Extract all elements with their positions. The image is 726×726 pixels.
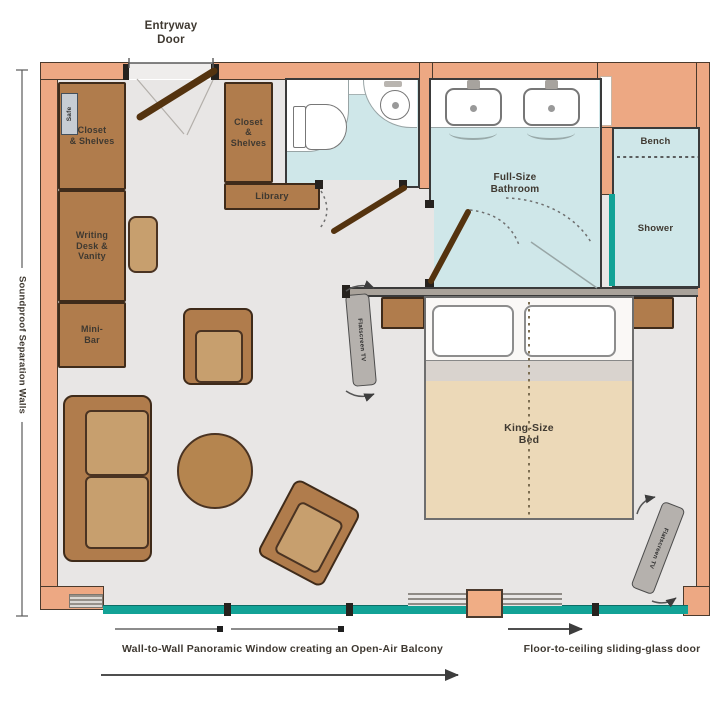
soundproof-walls-label: Soundproof Separation Walls (16, 268, 27, 422)
mini-bar: Mini- Bar (58, 302, 126, 368)
writing-desk-label: Writing Desk & Vanity (76, 230, 108, 262)
faucet-icon (467, 80, 480, 89)
window-mullion-post (466, 589, 503, 618)
bench-label: Bench (614, 136, 697, 147)
entryway-door-label: Entryway Door (121, 20, 221, 47)
sofa-cushion (85, 410, 149, 476)
sofa-cushion (85, 476, 149, 549)
panoramic-window-caption: Wall-to-Wall Panoramic Window creating a… (90, 643, 475, 655)
doorpost (425, 200, 434, 208)
round-sink-drain (392, 102, 399, 109)
accent-chair-cushion (273, 500, 344, 575)
wall-block-top-right (597, 62, 710, 129)
shower-glass-wall (609, 194, 615, 286)
faucet-icon (384, 81, 402, 87)
window-divider (346, 603, 353, 616)
flatscreen-tv-bed-label: Flatscreen TV (356, 318, 366, 362)
nightstand-right (632, 297, 674, 329)
toilet-room (285, 78, 420, 188)
floor-plan: Full-Size Bathroom Bench Shower King-Siz… (0, 0, 726, 726)
pillow (432, 305, 514, 357)
closet-mid-label: Closet & Shelves (231, 117, 266, 149)
sliding-door-track (502, 593, 562, 606)
toilet-room-door-opening (323, 180, 401, 190)
dimension-dot (338, 626, 344, 632)
full-bathroom-label: Full-Size Bathroom (431, 172, 599, 196)
doorpost (211, 64, 219, 80)
towel-arc (449, 126, 497, 140)
wall-top-left-segment (40, 62, 129, 80)
doorpost (315, 180, 323, 189)
sink-left-drain (470, 105, 477, 112)
shower-room: Bench Shower (612, 127, 700, 288)
bed-sheet-band (426, 360, 632, 382)
library: Library (224, 183, 320, 210)
sink-right-drain (548, 105, 555, 112)
nightstand-left (381, 297, 425, 329)
sliding-door-caption: Floor-to-ceiling sliding-glass door (498, 643, 726, 655)
doorpost (399, 180, 407, 189)
window-divider (592, 603, 599, 616)
bathroom-door-opening (426, 208, 434, 279)
writing-desk-vanity: Writing Desk & Vanity (58, 190, 126, 302)
toilet-bowl (305, 104, 347, 150)
bed-duvet (426, 381, 632, 518)
king-bed-label: King-Size Bed (449, 422, 609, 447)
doorpost (425, 279, 434, 287)
dimension-dot (217, 626, 223, 632)
faucet-icon (545, 80, 558, 89)
wall-left (40, 62, 58, 592)
mini-bar-label: Mini- Bar (81, 324, 103, 345)
desk-chair (128, 216, 158, 273)
closet-mid: Closet & Shelves (224, 82, 273, 183)
library-label: Library (255, 191, 289, 202)
window-divider (224, 603, 231, 616)
panoramic-window (103, 605, 688, 614)
window-end-bracket (69, 594, 103, 608)
full-bathroom: Full-Size Bathroom (429, 78, 602, 289)
wall-end-cap (342, 285, 350, 298)
towel-arc (527, 126, 575, 140)
armchair-ottoman (183, 308, 253, 385)
armchair-cushion (195, 330, 243, 383)
safe: Safe (61, 93, 78, 135)
pillow (524, 305, 616, 357)
safe-label: Safe (66, 107, 74, 122)
shower-label: Shower (614, 223, 697, 234)
sofa (63, 395, 152, 562)
sliding-door-track (408, 593, 468, 606)
doorpost (123, 64, 129, 80)
entry-door-opening (129, 63, 213, 79)
round-table (177, 433, 253, 509)
